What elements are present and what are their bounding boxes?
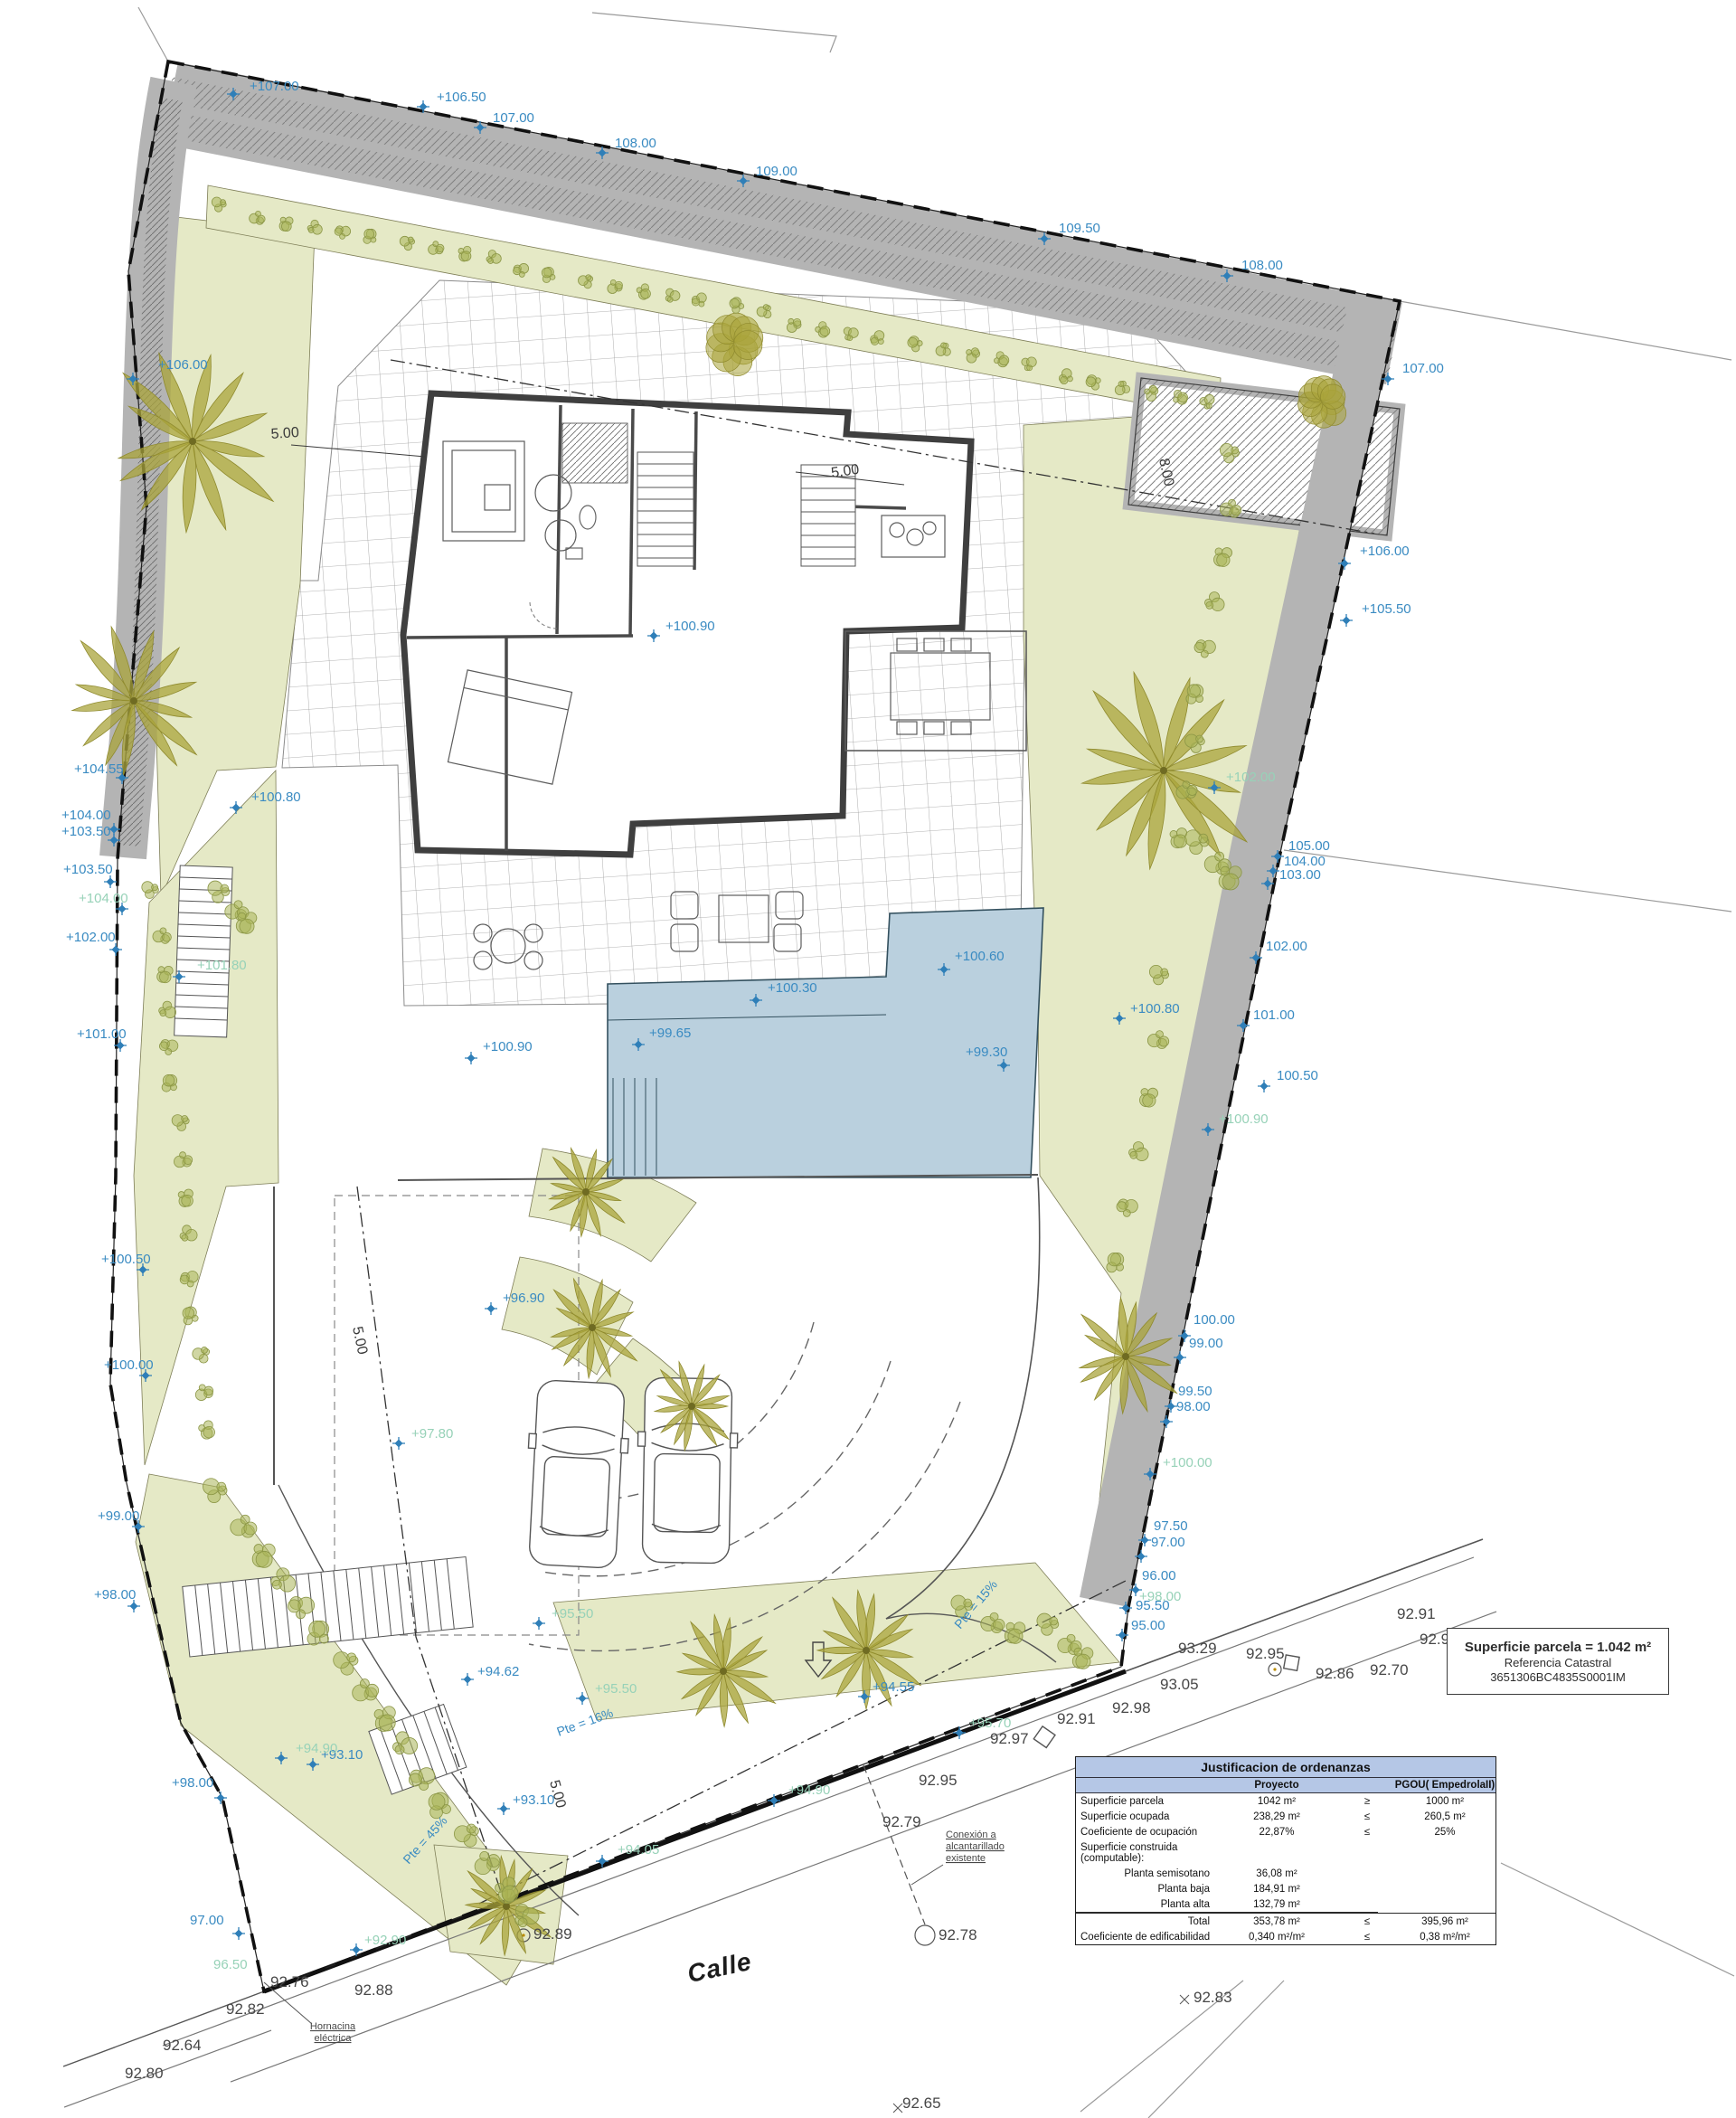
- svg-text:+92.90: +92.90: [364, 1933, 406, 1948]
- parcel-area: Superficie parcela = 1.042 m²: [1448, 1640, 1668, 1655]
- street-level-label: 92.76: [270, 1973, 309, 1990]
- dimension-label: 5.00: [349, 1325, 370, 1356]
- existing-grade-label: +98.00: [1139, 1589, 1181, 1604]
- svg-text:+95.70: +95.70: [969, 1716, 1011, 1731]
- svg-text:92.80: 92.80: [125, 2065, 164, 2082]
- point-cross-icon: [1180, 1995, 1189, 2004]
- svg-text:93.05: 93.05: [1160, 1676, 1199, 1693]
- svg-text:92.65: 92.65: [902, 2094, 941, 2112]
- svg-text:92.79: 92.79: [882, 1813, 921, 1830]
- svg-text:92.70: 92.70: [1370, 1661, 1409, 1678]
- svg-text:95.00: 95.00: [1131, 1618, 1165, 1633]
- svg-text:107.00: 107.00: [1402, 361, 1444, 376]
- elevation-label: 107.00: [1382, 361, 1444, 385]
- shower: [562, 423, 627, 483]
- svg-text:92.83: 92.83: [1193, 1989, 1232, 2006]
- elevation-label: +100.00: [104, 1357, 154, 1382]
- elevation-label: +98.00: [94, 1587, 140, 1612]
- ordenanzas-row: Coeficiente de ocupación22,87%≤25%: [1076, 1824, 1495, 1839]
- street-level-label: 92.70: [1370, 1661, 1409, 1678]
- svg-text:+100.00: +100.00: [1163, 1455, 1212, 1470]
- svg-text:96.00: 96.00: [1142, 1568, 1176, 1584]
- elevation-label: +100.90: [465, 1039, 533, 1064]
- svg-text:+100.80: +100.80: [251, 790, 301, 805]
- svg-text:107.00: 107.00: [493, 110, 534, 126]
- svg-text:Pte = 16%: Pte = 16%: [555, 1706, 616, 1739]
- ordenanzas-row: Planta alta132,79 m²: [1076, 1896, 1378, 1913]
- cadastral-ref-label: Referencia Catastral: [1448, 1656, 1668, 1669]
- street-level-label: 92.89: [533, 1925, 572, 1943]
- street-level-label: 92.91: [1057, 1710, 1096, 1727]
- conexion-note: Conexión a: [946, 1830, 997, 1840]
- col-proyecto: Proyecto: [1213, 1780, 1340, 1791]
- street-level-label: 92.78: [939, 1926, 977, 1943]
- parcel-info-box: Superficie parcela = 1.042 m² Referencia…: [1447, 1628, 1669, 1695]
- svg-text:+96.90: +96.90: [503, 1291, 544, 1306]
- ordenanzas-row: Planta semisotano36,08 m²: [1076, 1866, 1495, 1881]
- col-pgou: PGOU( EmpedrolaII): [1394, 1780, 1495, 1791]
- svg-text:92.76: 92.76: [270, 1973, 309, 1990]
- conexion-note: alcantarillado: [946, 1841, 1005, 1852]
- existing-grade-label: +92.90: [350, 1933, 406, 1956]
- elevation-label: +100.50: [101, 1252, 151, 1276]
- ordenanzas-title: Justificacion de ordenanzas: [1076, 1757, 1495, 1778]
- elevation-label: +99.00: [98, 1508, 145, 1533]
- existing-grade-label: +94.90: [768, 1782, 830, 1807]
- svg-text:+103.50: +103.50: [63, 862, 113, 877]
- svg-text:+94.90: +94.90: [296, 1741, 337, 1756]
- elevation-label: +103.50: [63, 862, 117, 888]
- svg-text:+94.90: +94.90: [788, 1782, 830, 1798]
- svg-text:92.98: 92.98: [1112, 1699, 1151, 1716]
- svg-text:+101.00: +101.00: [77, 1026, 127, 1042]
- manhole-icon: [915, 1925, 935, 1945]
- svg-text:+95.50: +95.50: [595, 1681, 637, 1697]
- elevation-label: 97.00: [190, 1913, 245, 1940]
- ordenanzas-row: Superficie parcela1042 m²≥1000 m²: [1076, 1793, 1495, 1809]
- svg-text:108.00: 108.00: [1241, 258, 1283, 273]
- cadastral-ref-value: 3651306BC4835S0001IM: [1448, 1670, 1668, 1684]
- street-level-label: 92.86: [1316, 1665, 1354, 1682]
- svg-text:+100.90: +100.90: [665, 619, 715, 634]
- hornacina-note: Hornacina: [310, 2021, 356, 2032]
- street-level-label: 92.91: [1397, 1605, 1436, 1622]
- elevation-label: +105.50: [1340, 601, 1411, 627]
- svg-text:92.91: 92.91: [1057, 1710, 1096, 1727]
- elevation-label: 100.50: [1258, 1068, 1318, 1092]
- dimension-label: 5.00: [270, 425, 299, 442]
- svg-text:+100.80: +100.80: [1130, 1001, 1180, 1016]
- svg-text:100.00: 100.00: [1193, 1312, 1235, 1328]
- svg-text:92.95: 92.95: [919, 1772, 958, 1789]
- svg-text:92.91: 92.91: [1397, 1605, 1436, 1622]
- svg-text:+99.65: +99.65: [649, 1026, 691, 1041]
- street-level-label: 92.95: [1246, 1645, 1285, 1662]
- svg-text:+100.30: +100.30: [768, 980, 817, 996]
- svg-text:109.50: 109.50: [1059, 221, 1100, 236]
- svg-text:92.89: 92.89: [533, 1925, 572, 1943]
- conexion-leader: [911, 1865, 943, 1885]
- svg-text:+94.05: +94.05: [618, 1842, 659, 1858]
- elevation-label: +102.00: [66, 930, 122, 956]
- svg-text:+94.62: +94.62: [477, 1664, 519, 1679]
- svg-text:97.00: 97.00: [190, 1913, 224, 1928]
- svg-text:92.82: 92.82: [226, 2000, 265, 2018]
- svg-text:+107.00: +107.00: [250, 79, 299, 94]
- svg-text:+104.00: +104.00: [79, 891, 128, 906]
- elevation-label: +101.00: [77, 1026, 127, 1052]
- svg-text:92.78: 92.78: [939, 1926, 977, 1943]
- street-level-label: 93.05: [1160, 1676, 1199, 1693]
- existing-grade-label: 96.50: [213, 1957, 248, 1972]
- svg-text:92.64: 92.64: [163, 2037, 202, 2054]
- svg-text:100.50: 100.50: [1277, 1068, 1318, 1083]
- entry-stair: [801, 465, 855, 566]
- slope-label: Pte = 16%: [555, 1706, 616, 1739]
- elevation-label: +106.00: [1338, 544, 1410, 570]
- street-level-label: 92.88: [354, 1981, 393, 1999]
- street-level-label: 92.80: [125, 2065, 164, 2082]
- site-plan-page: +107.00+106.50107.00108.00109.00109.5010…: [0, 0, 1736, 2118]
- elevation-label: 95.00: [1116, 1618, 1165, 1641]
- svg-text:97.00: 97.00: [1151, 1535, 1185, 1550]
- street-level-label: 92.98: [1112, 1699, 1151, 1716]
- svg-text:99.50: 99.50: [1178, 1384, 1212, 1399]
- box-symbol-icon: [1284, 1655, 1299, 1670]
- point-cross-icon: [893, 2104, 902, 2113]
- svg-text:+102.00: +102.00: [66, 930, 116, 945]
- svg-text:+100.90: +100.90: [483, 1039, 533, 1054]
- svg-text:96.50: 96.50: [213, 1957, 248, 1972]
- street-level-label: 92.65: [902, 2094, 941, 2112]
- elevation-label: +106.50: [417, 90, 486, 113]
- street-level-label: 92.95: [919, 1772, 958, 1789]
- svg-text:92.95: 92.95: [1246, 1645, 1285, 1662]
- svg-text:+93.10: +93.10: [513, 1792, 554, 1808]
- street-level-label: 92.64: [163, 2037, 202, 2054]
- svg-text:109.00: 109.00: [756, 164, 797, 179]
- ordenanzas-row: Planta baja184,91 m²: [1076, 1881, 1495, 1896]
- street-level-label: 92.97: [990, 1730, 1029, 1747]
- ordenanzas-table: Justificacion de ordenanzas Proyecto PGO…: [1075, 1756, 1496, 1945]
- ordenanzas-header: Proyecto PGOU( EmpedrolaII): [1076, 1778, 1495, 1793]
- svg-text:+102.00: +102.00: [1226, 770, 1276, 785]
- svg-text:+100.90: +100.90: [1219, 1111, 1269, 1127]
- svg-text:92.97: 92.97: [990, 1730, 1029, 1747]
- svg-text:+106.00: +106.00: [1360, 544, 1410, 559]
- hornacina-note: eléctrica: [315, 2033, 353, 2044]
- svg-text:+100.60: +100.60: [955, 949, 1005, 964]
- svg-text:+98.00: +98.00: [1139, 1589, 1181, 1604]
- svg-text:+106.50: +106.50: [437, 90, 486, 105]
- svg-text:5.00: 5.00: [270, 425, 299, 442]
- existing-grade-label: +104.00: [79, 891, 128, 915]
- svg-text:101.00: 101.00: [1253, 1007, 1295, 1023]
- svg-text:+97.80: +97.80: [411, 1426, 453, 1442]
- svg-text:+104.00: +104.00: [61, 808, 111, 823]
- car: [523, 1379, 632, 1568]
- svg-text:93.29: 93.29: [1178, 1640, 1217, 1657]
- elevation-label: +93.10: [497, 1792, 554, 1815]
- svg-text:+98.00: +98.00: [172, 1775, 213, 1791]
- svg-text:+99.00: +99.00: [98, 1508, 139, 1524]
- svg-text:+94.55: +94.55: [873, 1679, 914, 1695]
- svg-text:102.00: 102.00: [1266, 939, 1307, 954]
- ordenanzas-row: Superficie ocupada238,29 m²≤260,5 m²: [1076, 1809, 1495, 1824]
- box-symbol-icon: [1033, 1726, 1055, 1748]
- svg-text:+95.50: +95.50: [552, 1606, 593, 1622]
- svg-text:+104.55: +104.55: [74, 761, 124, 777]
- street-level-label: 92.79: [882, 1813, 921, 1830]
- street-level-label: 93.29: [1178, 1640, 1217, 1657]
- street-level-label: 92.83: [1193, 1989, 1232, 2006]
- svg-text:99.00: 99.00: [1189, 1336, 1223, 1351]
- svg-text:+106.00: +106.00: [158, 357, 208, 373]
- svg-text:103.00: 103.00: [1279, 867, 1321, 883]
- svg-text:97.50: 97.50: [1154, 1518, 1188, 1534]
- svg-text:+101.80: +101.80: [197, 958, 247, 973]
- street-level-label: 92.82: [226, 2000, 265, 2018]
- svg-text:+105.50: +105.50: [1362, 601, 1411, 617]
- ordenanzas-row: Coeficiente de edificabilidad0,340 m²/m²…: [1076, 1929, 1495, 1944]
- ordenanzas-row: Total353,78 m²≤395,96 m²: [1076, 1913, 1495, 1929]
- svg-text:98.00: 98.00: [1176, 1399, 1211, 1414]
- svg-text:105.00: 105.00: [1288, 838, 1330, 854]
- conexion-note: existente: [946, 1853, 986, 1864]
- svg-text:108.00: 108.00: [615, 136, 656, 151]
- ordenanzas-row: Superficie construida (computable):: [1076, 1839, 1495, 1866]
- elevation-label: +94.62: [461, 1664, 519, 1686]
- svg-text:+98.00: +98.00: [94, 1587, 136, 1603]
- existing-grade-label: +97.80: [392, 1426, 453, 1450]
- interior-stair: [637, 452, 693, 566]
- svg-text:+99.30: +99.30: [966, 1045, 1007, 1060]
- svg-text:92.86: 92.86: [1316, 1665, 1354, 1682]
- svg-text:92.88: 92.88: [354, 1981, 393, 1999]
- svg-text:5.00: 5.00: [349, 1325, 370, 1356]
- svg-text:+103.50: +103.50: [61, 824, 111, 839]
